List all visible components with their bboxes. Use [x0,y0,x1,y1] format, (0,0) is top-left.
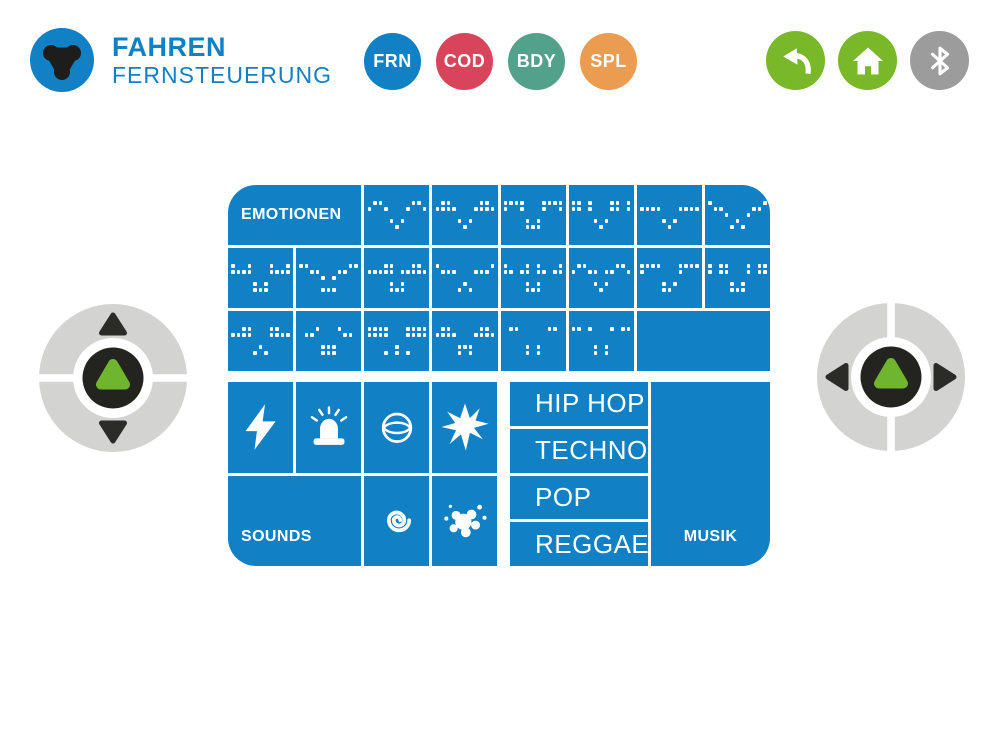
mode-button-spl[interactable]: SPL [580,33,637,90]
emotion-face-icon [299,327,358,355]
sound-ball-button[interactable] [364,382,429,473]
emotions-label-text: EMOTIONEN [241,206,342,224]
emotion-dizzy[interactable] [432,311,497,371]
burst-icon [439,401,491,453]
emotion-blink[interactable] [501,248,566,308]
tinkerbots-logo [30,28,94,92]
sound-burst-button[interactable] [432,382,497,473]
sounds-panel-label: SOUNDS [228,476,361,567]
mode-nav: FRNCODBDYSPL [364,33,637,90]
emotion-smile[interactable] [364,185,429,245]
emotion-face-icon [504,327,563,355]
emotion-face-icon [299,264,358,292]
siren-icon [303,401,355,453]
emotion-shy[interactable] [501,311,566,371]
emotion-face-icon [231,327,290,355]
page-subtitle: FERNSTEUERUNG [112,63,332,88]
emotion-face-icon [368,264,427,292]
back-button[interactable] [766,31,825,90]
emotion-relaxed[interactable] [296,248,361,308]
emotion-worried[interactable] [432,248,497,308]
emotion-grin[interactable] [228,248,293,308]
sounds-label-text: SOUNDS [241,528,312,546]
emotion-open-mouth[interactable] [296,311,361,371]
back-icon [778,43,814,79]
emotion-upset[interactable] [228,311,293,371]
spiral-icon [371,495,423,547]
sound-splat-button[interactable] [432,476,497,567]
music-genre-pop[interactable]: POP [510,476,648,520]
emotion-neutral[interactable] [637,185,702,245]
ball-icon [371,401,423,453]
emotion-face-icon [572,201,631,229]
emotion-sad[interactable] [705,185,770,245]
emotion-focused[interactable] [364,248,429,308]
emotion-wink[interactable] [569,248,634,308]
emotion-face-icon [368,201,427,229]
emotion-confused[interactable] [637,248,702,308]
home-button[interactable] [838,31,897,90]
page-title: FAHREN [112,33,332,61]
emotions-panel: EMOTIONEN [228,185,770,371]
emotion-surprised[interactable] [501,185,566,245]
bluetooth-icon [922,43,958,79]
bluetooth-button[interactable] [910,31,969,90]
emotion-face-icon [708,201,767,229]
remote-control-screen: FAHREN FERNSTEUERUNG FRNCODBDYSPL EMOTIO… [0,0,1000,750]
emotion-face-icon [572,264,631,292]
sound-lightning-button[interactable] [228,382,293,473]
emotion-face-icon [640,264,699,292]
sounds-panel: SOUNDS [228,382,497,566]
music-panel-label: MUSIK [651,382,770,566]
emotion-solid-eyes[interactable] [364,311,429,371]
emotion-face-icon [504,264,563,292]
emotion-face-icon [504,201,563,229]
emotion-pixel-eyes[interactable] [705,248,770,308]
header-titles: FAHREN FERNSTEUERUNG [112,33,332,89]
splat-icon [439,495,491,547]
emotion-face-icon [368,327,427,355]
emotion-wide-eyes[interactable] [569,185,634,245]
mode-button-cod[interactable]: COD [436,33,493,90]
mode-button-bdy[interactable]: BDY [508,33,565,90]
emotion-face-icon [436,201,495,229]
emotion-face-icon [436,327,495,355]
music-label-text: MUSIK [684,528,738,546]
mode-button-frn[interactable]: FRN [364,33,421,90]
sound-spiral-button[interactable] [364,476,429,567]
utility-nav [766,31,969,90]
music-genre-techno[interactable]: TECHNO [510,429,648,473]
dpad-horizontal [816,302,966,452]
emotion-face-icon [436,264,495,292]
music-panel: MUSIK HIP HOPTECHNOPOPREGGAE [510,382,770,566]
music-genre-reggae[interactable]: REGGAE [510,522,648,566]
dpad-vertical [38,303,188,453]
emotions-panel-label: EMOTIONEN [228,185,361,245]
sound-siren-button[interactable] [296,382,361,473]
home-icon [850,43,886,79]
emotion-tiny-eyes[interactable] [569,311,634,371]
emotion-face-icon [640,201,699,229]
emotions-empty-cell [637,311,770,371]
emotion-happy[interactable] [432,185,497,245]
emotion-face-icon [231,264,290,292]
lightning-icon [235,401,287,453]
emotion-face-icon [708,264,767,292]
emotion-face-icon [572,327,631,355]
music-genre-hip-hop[interactable]: HIP HOP [510,382,648,426]
